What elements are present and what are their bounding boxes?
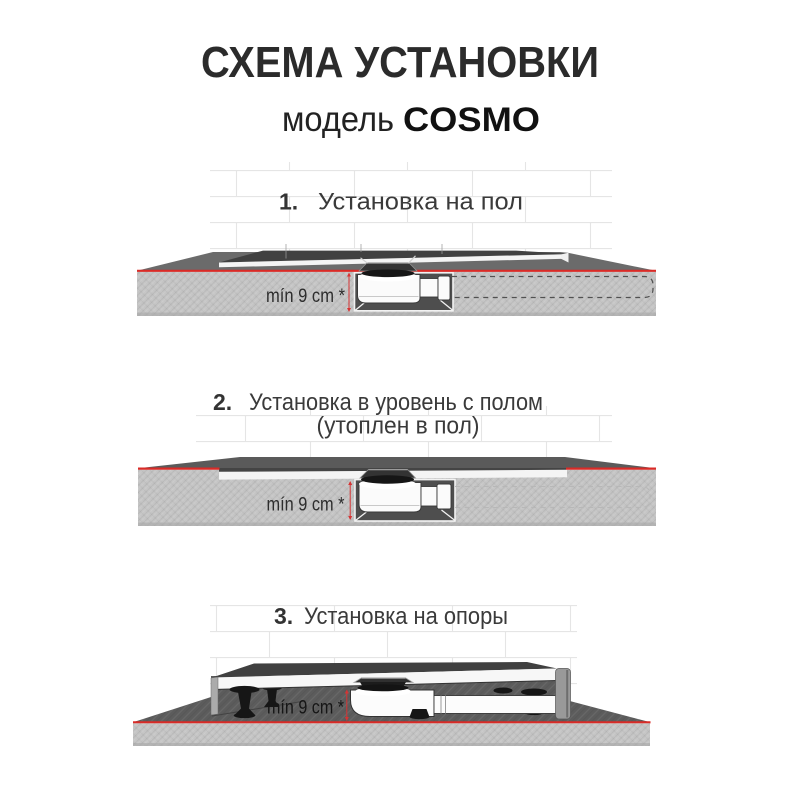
svg-text:mín 9 cm *: mín 9 cm * [267, 494, 345, 516]
svg-text:3.: 3. [274, 603, 293, 629]
svg-text:Установка на опоры: Установка на опоры [304, 603, 508, 630]
svg-text:модель: модель [282, 100, 394, 139]
svg-text:2.: 2. [213, 389, 232, 415]
svg-text:COSMO: COSMO [403, 101, 540, 139]
svg-text:mín 9 cm *: mín 9 cm * [267, 697, 344, 719]
svg-text:Установка на пол: Установка на пол [318, 189, 523, 216]
svg-text:(утоплен в пол): (утоплен в пол) [317, 413, 480, 440]
svg-text:mín 9 cm *: mín 9 cm * [266, 285, 345, 307]
svg-text:1.: 1. [279, 189, 298, 215]
svg-text:СХЕМА УСТАНОВКИ: СХЕМА УСТАНОВКИ [201, 38, 599, 87]
